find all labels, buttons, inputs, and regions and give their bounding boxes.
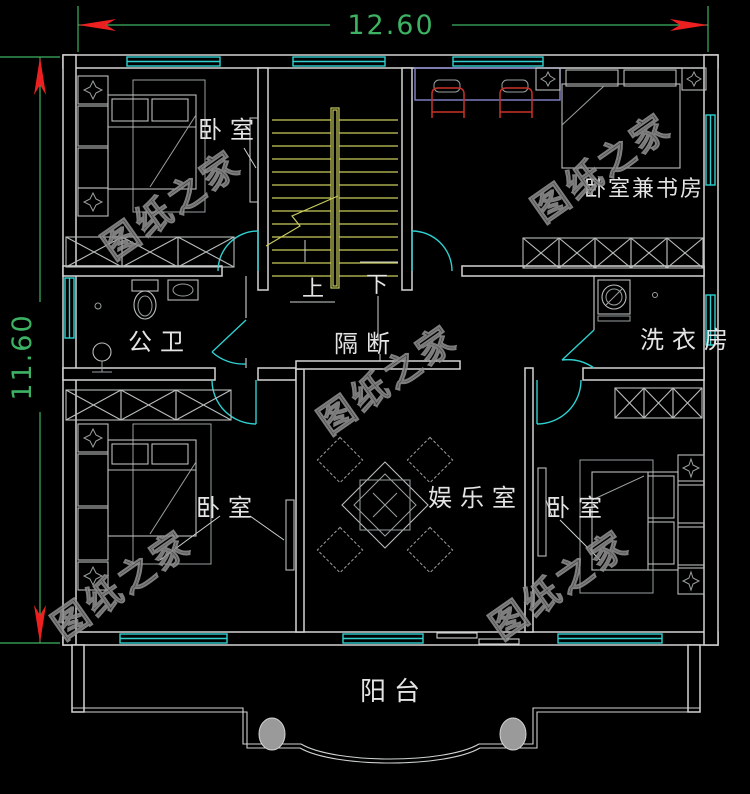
chair-icon: [432, 80, 464, 118]
chair-icon: [317, 527, 362, 572]
watermark-text: 图纸之家: [483, 523, 638, 648]
left-dimension: 11.60: [0, 57, 60, 643]
left-dimension-value: 11.60: [7, 313, 38, 400]
door-icon: [537, 380, 581, 424]
floor-drain-icon: [95, 303, 101, 309]
chair-icon: [317, 437, 362, 482]
stair-treads: [272, 120, 398, 276]
bathroom: 公卫: [92, 280, 198, 372]
partition-label: 隔断: [334, 330, 398, 358]
nightstand-icon: [678, 568, 704, 594]
balcony-label: 阳台: [360, 677, 428, 707]
bedroom-study: 卧室兼书房: [415, 68, 706, 268]
floor-plan-page: 12.60 11.60: [0, 0, 750, 794]
chair-icon: [407, 437, 452, 482]
nightstand-icon: [78, 424, 108, 452]
column-icon: [500, 718, 526, 750]
bedroom-top-left-label: 卧室: [198, 116, 262, 144]
dresser-icon: [538, 468, 546, 556]
sink-icon: [168, 280, 198, 300]
nightstand-icon: [682, 68, 706, 90]
stairs-down-label: 下: [366, 273, 390, 298]
entertainment-room: 娱乐室: [317, 437, 524, 572]
bathroom-label: 公卫: [128, 328, 192, 356]
stairs-up-label: 上: [302, 277, 326, 302]
floor-plan-drawing: 12.60 11.60: [0, 0, 750, 794]
nightstand-icon: [78, 188, 108, 216]
staircase: 上 下: [266, 108, 398, 340]
mahjong-table-icon: [342, 462, 428, 548]
washing-machine-icon: [598, 280, 630, 321]
door-icon: [212, 380, 256, 424]
top-dimension: 12.60: [78, 6, 708, 52]
wardrobe-icon: [66, 390, 231, 420]
nightstand-icon: [78, 76, 108, 104]
wardrobe-icon: [523, 238, 703, 268]
top-dimension-value: 12.60: [347, 10, 434, 41]
nightstand-icon: [536, 68, 560, 90]
stair-direction-labels: 上 下: [290, 240, 398, 340]
column-icon: [259, 718, 285, 750]
floor-drain-icon: [653, 293, 658, 298]
toilet-icon: [132, 280, 158, 319]
chair-icon: [500, 80, 532, 118]
wardrobe-icon: [615, 388, 702, 418]
door-icon: [212, 320, 246, 364]
desk-icon: [415, 68, 560, 100]
stair-break-line: [266, 196, 338, 246]
bedroom-bottom-right-label: 卧室: [546, 494, 610, 522]
bed-icon: [108, 440, 196, 536]
dresser-icon: [286, 500, 294, 570]
door-icon: [412, 231, 452, 271]
chair-icon: [407, 527, 452, 572]
door-icon: [562, 330, 594, 368]
laundry-label: 洗衣房: [640, 326, 736, 354]
entertainment-label: 娱乐室: [428, 484, 524, 512]
watermark-text: 图纸之家: [95, 143, 250, 268]
balcony: 阳台: [72, 645, 700, 763]
bedroom-bottom-left-label: 卧室: [196, 494, 260, 522]
nightstand-icon: [678, 455, 704, 481]
